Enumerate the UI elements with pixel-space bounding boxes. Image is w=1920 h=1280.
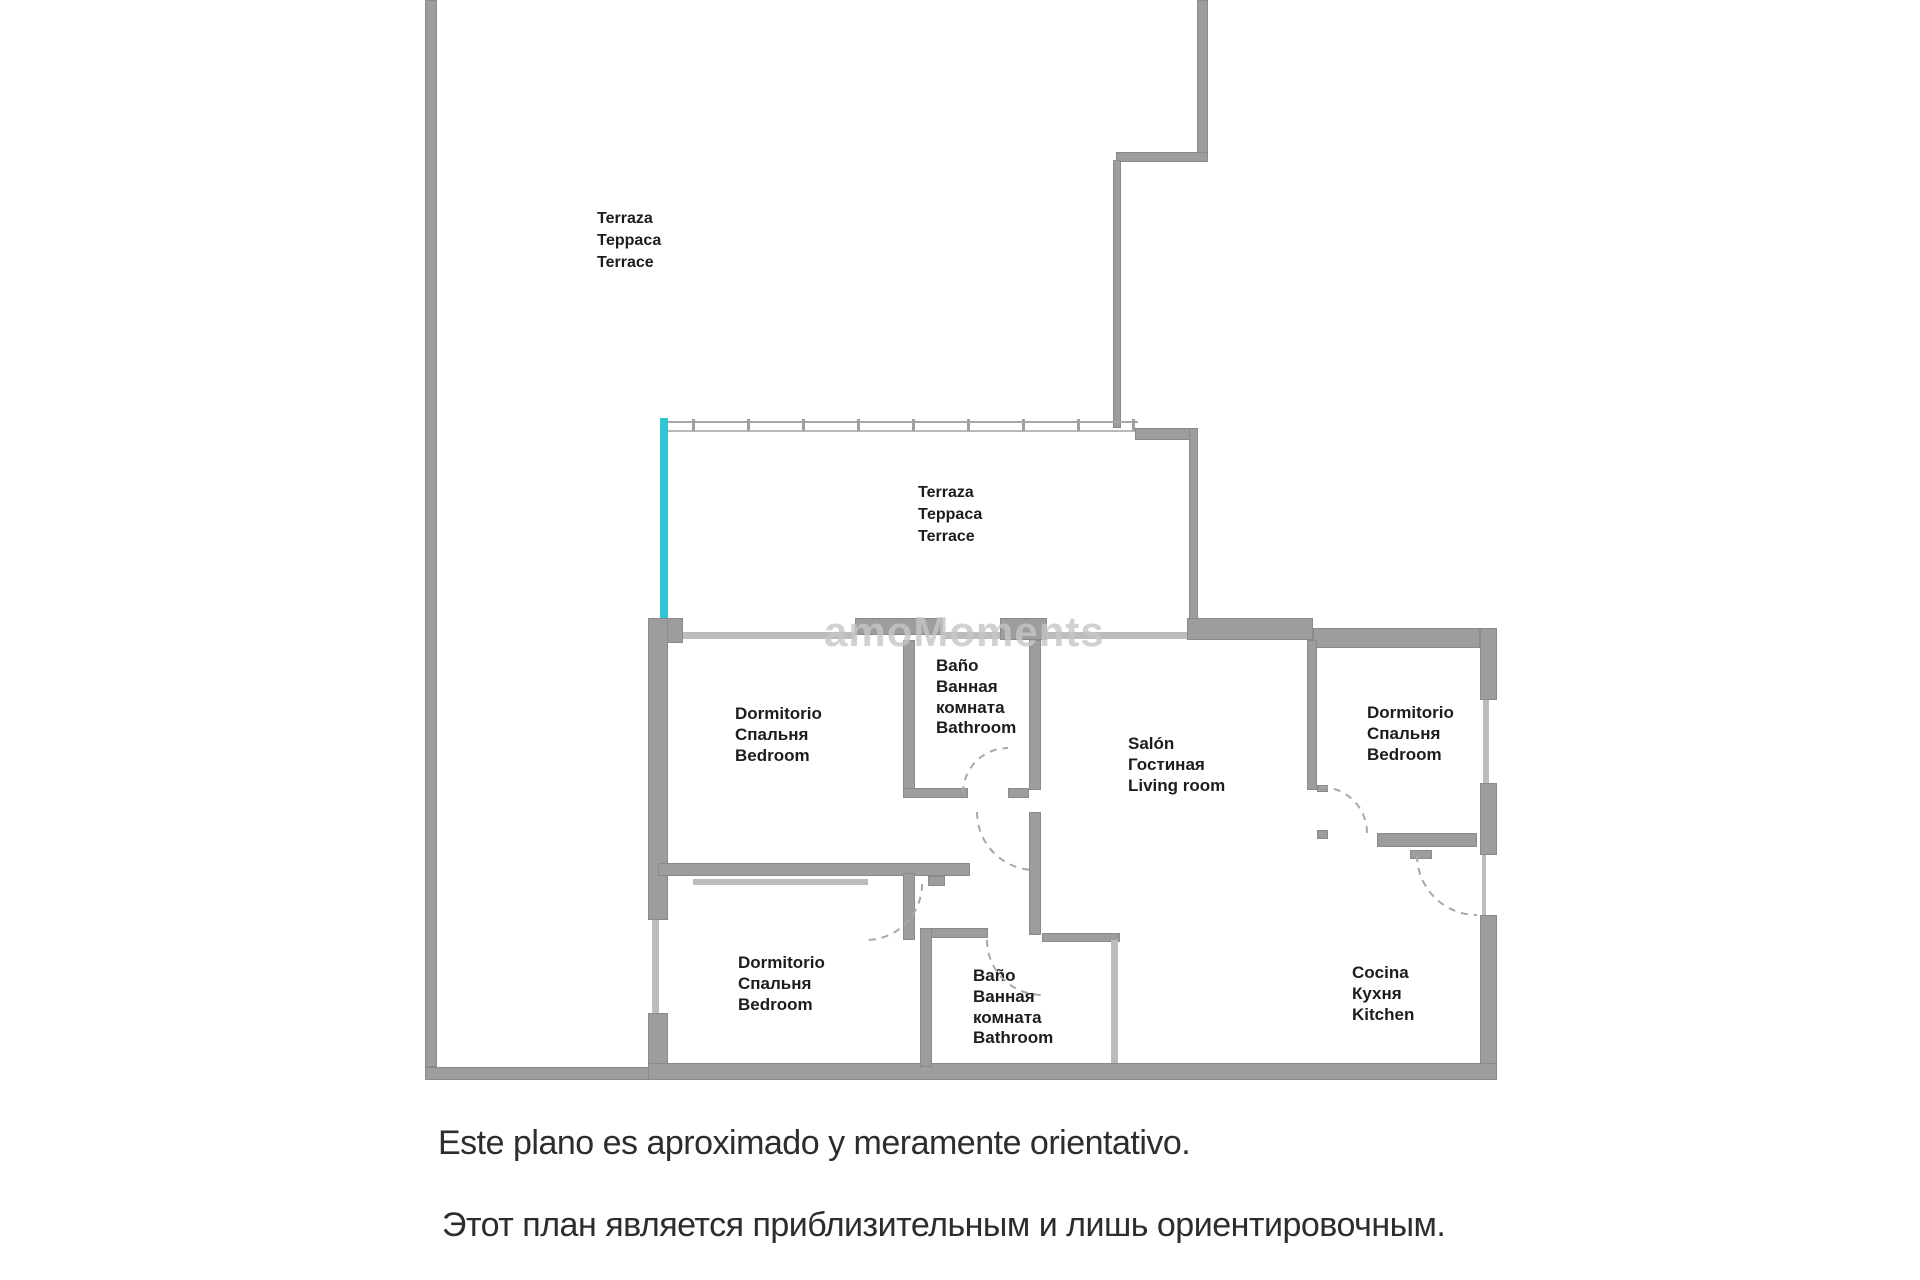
door-swing-arc (977, 812, 1035, 870)
agency-watermark: amoMoments (824, 608, 1105, 656)
door-swing-arc (866, 884, 922, 940)
floor-plan-canvas: Terraza Терраса Terrace Terraza Терраса … (0, 0, 1920, 1280)
door-swing-arc (963, 748, 1008, 793)
door-swing-arc (987, 940, 1042, 995)
door-swing-arc (1417, 855, 1477, 915)
door-swing-arc (1321, 787, 1367, 833)
